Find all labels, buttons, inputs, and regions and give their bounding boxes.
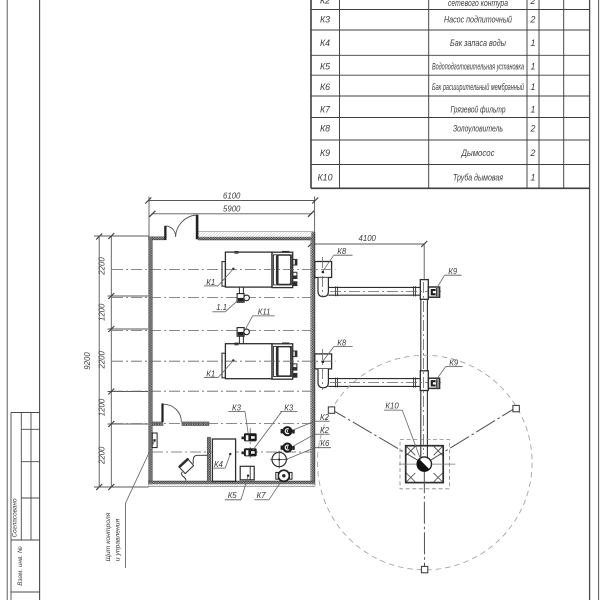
svg-text:К3: К3 xyxy=(284,403,294,412)
svg-text:Труба дымовая: Труба дымовая xyxy=(453,173,503,183)
svg-text:К10: К10 xyxy=(318,173,333,183)
svg-text:К6: К6 xyxy=(320,82,330,92)
svg-text:4100: 4100 xyxy=(359,234,377,243)
svg-text:1.1: 1.1 xyxy=(216,303,227,312)
svg-text:1: 1 xyxy=(531,104,536,114)
svg-text:2200: 2200 xyxy=(98,446,107,465)
svg-text:К2: К2 xyxy=(320,413,330,422)
svg-text:2200: 2200 xyxy=(98,257,107,276)
svg-text:К5: К5 xyxy=(228,491,238,500)
svg-text:2200: 2200 xyxy=(98,350,107,369)
svg-text:К9: К9 xyxy=(320,148,330,158)
svg-text:К9: К9 xyxy=(448,267,458,276)
svg-text:Бак расширительный мембранный: Бак расширительный мембранный xyxy=(432,82,524,92)
svg-text:сетевого контура: сетевого контура xyxy=(448,0,508,8)
svg-text:К8: К8 xyxy=(320,123,330,133)
svg-text:1: 1 xyxy=(531,82,536,92)
svg-text:2: 2 xyxy=(530,123,536,133)
svg-text:К2: К2 xyxy=(320,426,330,435)
svg-text:Водоподготовительная установка: Водоподготовительная установка xyxy=(432,62,524,72)
svg-text:1: 1 xyxy=(531,62,536,72)
svg-text:1: 1 xyxy=(531,38,536,48)
svg-text:6100: 6100 xyxy=(223,191,241,200)
svg-text:Бак запаса воды: Бак запаса воды xyxy=(450,38,506,48)
svg-text:1200: 1200 xyxy=(98,303,107,321)
svg-text:Щит контроля: Щит контроля xyxy=(105,512,112,561)
svg-text:Золоуловитель: Золоуловитель xyxy=(453,123,503,133)
svg-text:5900: 5900 xyxy=(223,205,241,214)
svg-text:Дымосос: Дымосос xyxy=(461,148,495,158)
svg-text:и управления: и управления xyxy=(115,518,122,561)
svg-text:Согласовано: Согласовано xyxy=(12,498,19,537)
svg-text:К8: К8 xyxy=(337,247,347,256)
svg-text:Взам. инв. №: Взам. инв. № xyxy=(17,546,24,586)
svg-text:К7: К7 xyxy=(320,104,331,114)
svg-text:К3: К3 xyxy=(232,403,242,412)
svg-text:2: 2 xyxy=(530,148,536,158)
svg-text:1200: 1200 xyxy=(98,398,107,416)
svg-text:К4: К4 xyxy=(320,38,330,48)
svg-text:К11: К11 xyxy=(258,307,271,316)
svg-text:К9: К9 xyxy=(449,358,459,367)
svg-text:К4: К4 xyxy=(214,460,224,469)
svg-text:К8: К8 xyxy=(337,338,347,347)
svg-text:2: 2 xyxy=(530,0,536,6)
svg-text:К5: К5 xyxy=(320,62,330,72)
svg-text:К3: К3 xyxy=(320,15,330,25)
svg-text:1: 1 xyxy=(531,173,536,183)
svg-text:Насос подпиточный: Насос подпиточный xyxy=(444,15,512,25)
svg-text:К2: К2 xyxy=(320,0,330,5)
svg-text:Грязевой фильтр: Грязевой фильтр xyxy=(451,104,506,114)
svg-text:'К6: 'К6 xyxy=(319,439,330,448)
svg-text:9200: 9200 xyxy=(83,352,92,370)
svg-text:К10: К10 xyxy=(385,402,399,411)
svg-text:К7: К7 xyxy=(257,491,267,500)
svg-text:2: 2 xyxy=(530,15,536,25)
